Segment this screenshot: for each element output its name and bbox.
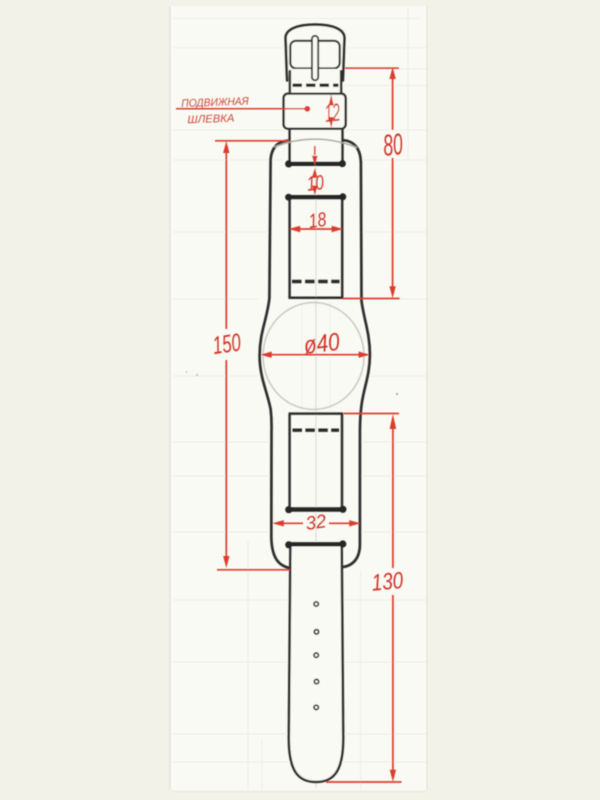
svg-text:12: 12: [323, 99, 341, 128]
svg-text:10: 10: [306, 171, 326, 196]
svg-text:ПОДВИЖНАЯ: ПОДВИЖНАЯ: [181, 96, 249, 110]
svg-text:18: 18: [307, 209, 327, 233]
svg-text:130: 130: [371, 567, 405, 596]
svg-text:80: 80: [381, 128, 404, 163]
svg-text:ø40: ø40: [302, 328, 341, 360]
svg-text:ШЛЕВКА: ШЛЕВКА: [187, 113, 234, 127]
svg-text:32: 32: [304, 511, 328, 535]
svg-text:150: 150: [211, 328, 243, 360]
